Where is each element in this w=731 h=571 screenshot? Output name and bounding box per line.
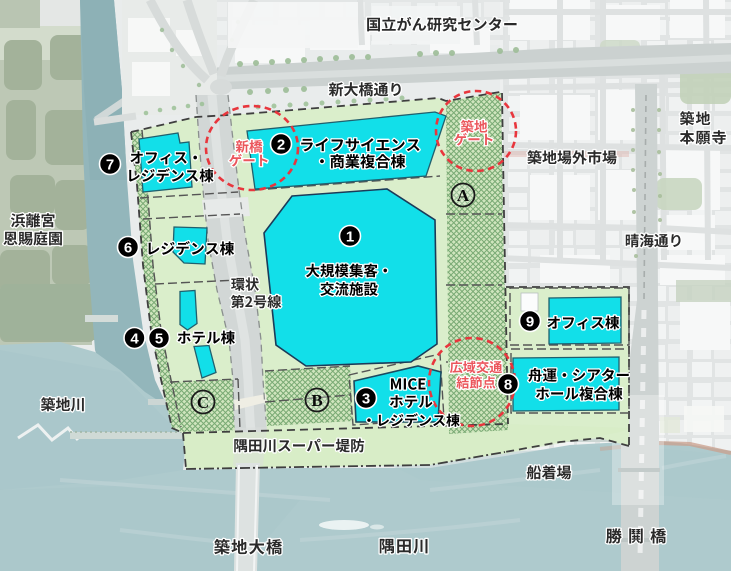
svg-text:2: 2	[277, 137, 285, 154]
svg-text:9: 9	[526, 314, 534, 331]
svg-text:1: 1	[346, 229, 354, 246]
svg-text:5: 5	[155, 331, 163, 348]
svg-text:4: 4	[130, 331, 139, 348]
svg-text:6: 6	[124, 240, 132, 257]
svg-text:A: A	[457, 186, 470, 205]
svg-text:3: 3	[362, 391, 370, 408]
svg-text:C: C	[197, 393, 209, 412]
svg-text:B: B	[311, 391, 322, 410]
svg-text:8: 8	[504, 377, 512, 394]
svg-text:7: 7	[106, 157, 114, 174]
